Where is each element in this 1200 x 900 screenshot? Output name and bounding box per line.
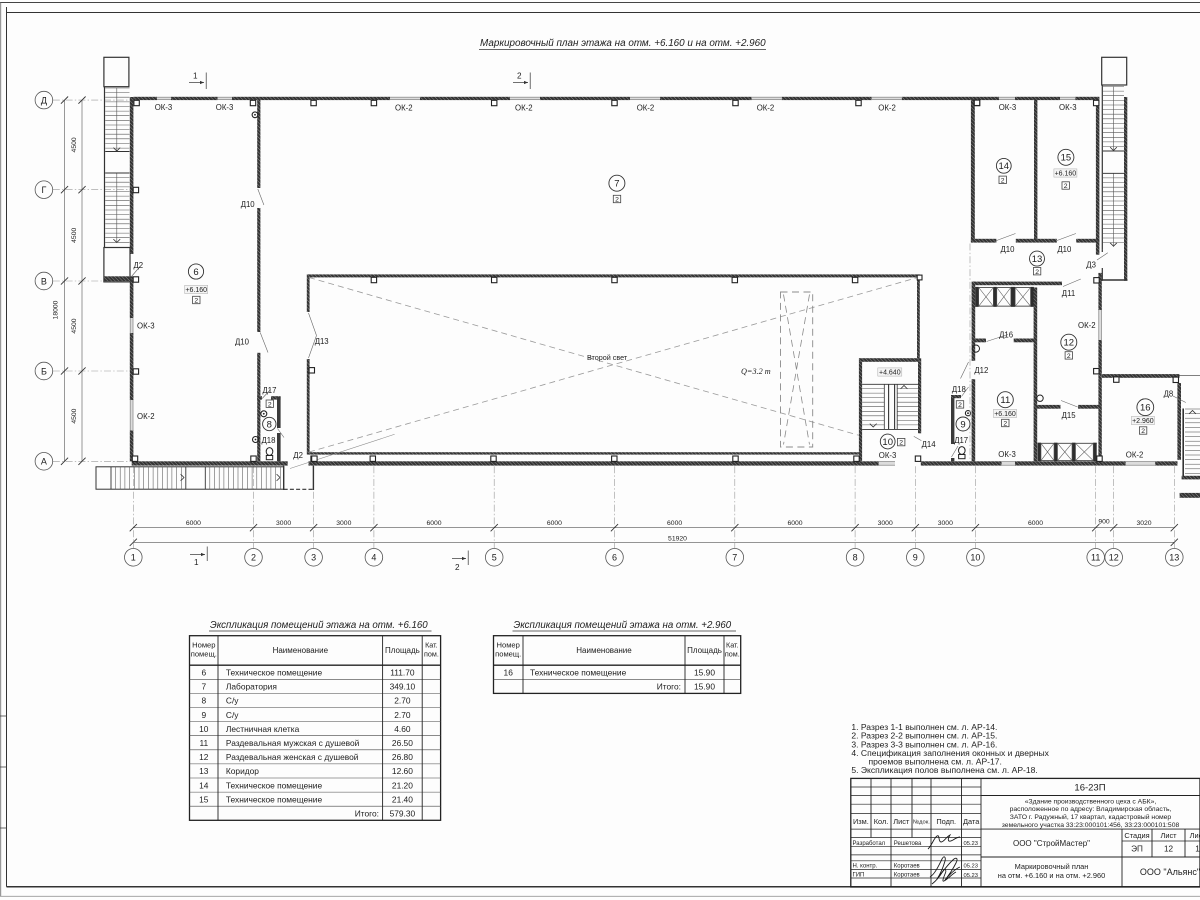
svg-text:7: 7 — [201, 682, 206, 692]
svg-text:ГИП: ГИП — [853, 873, 865, 879]
svg-text:Маркировочный план: Маркировочный план — [1015, 862, 1089, 871]
svg-text:4500: 4500 — [71, 408, 78, 423]
svg-text:6000: 6000 — [667, 520, 682, 527]
svg-text:помещ.: помещ. — [191, 650, 217, 659]
svg-text:6: 6 — [193, 267, 198, 278]
svg-text:Д17: Д17 — [954, 436, 968, 445]
svg-text:13: 13 — [199, 766, 209, 776]
svg-text:Изм.: Изм. — [853, 817, 869, 826]
svg-text:ОК-2: ОК-2 — [395, 104, 413, 113]
svg-text:В: В — [41, 276, 47, 286]
svg-text:Техническое помещение: Техническое помещение — [226, 780, 323, 790]
svg-text:16-23П: 16-23П — [1074, 783, 1105, 794]
svg-text:6: 6 — [201, 668, 206, 678]
svg-text:18000: 18000 — [53, 300, 60, 319]
svg-text:Маркировочный план этажа на от: Маркировочный план этажа на отм. +6.160 … — [480, 38, 766, 49]
svg-text:Кат.: Кат. — [425, 641, 438, 650]
svg-text:ОК-2: ОК-2 — [1078, 321, 1096, 330]
svg-text:ОК-2: ОК-2 — [1126, 451, 1144, 460]
svg-text:Итого:: Итого: — [657, 682, 681, 692]
svg-text:Второй свет: Второй свет — [587, 353, 628, 362]
svg-text:21.40: 21.40 — [392, 794, 413, 804]
svg-text:Лист: Лист — [893, 817, 910, 826]
svg-text:8: 8 — [201, 696, 206, 706]
svg-text:помещ.: помещ. — [495, 650, 521, 659]
svg-text:пом.: пом. — [725, 650, 740, 659]
svg-text:26.50: 26.50 — [392, 738, 413, 748]
svg-text:4: 4 — [371, 553, 376, 563]
svg-text:2: 2 — [1035, 269, 1039, 276]
svg-text:111.70: 111.70 — [390, 668, 415, 678]
svg-text:Q=3.2 т: Q=3.2 т — [741, 367, 771, 376]
svg-text:Техническое помещение: Техническое помещение — [226, 794, 323, 804]
svg-text:5: 5 — [492, 553, 497, 563]
svg-text:Коротаев: Коротаев — [894, 873, 920, 879]
svg-text:+4.640: +4.640 — [879, 370, 901, 377]
svg-text:3020: 3020 — [1136, 520, 1151, 527]
svg-text:12: 12 — [1164, 845, 1174, 854]
svg-text:ОК-2: ОК-2 — [878, 104, 896, 113]
svg-text:6000: 6000 — [1028, 520, 1043, 527]
svg-text:Д18: Д18 — [262, 436, 276, 445]
svg-text:14: 14 — [199, 780, 209, 790]
svg-text:6: 6 — [612, 553, 617, 563]
svg-text:ОК-2: ОК-2 — [637, 104, 655, 113]
svg-text:Д10: Д10 — [1001, 245, 1016, 254]
svg-text:Техническое помещение: Техническое помещение — [530, 668, 627, 678]
svg-text:+6.160: +6.160 — [994, 411, 1016, 418]
svg-text:26.80: 26.80 — [392, 752, 413, 762]
svg-text:ОК-2: ОК-2 — [137, 412, 155, 421]
svg-text:ООО "СтройМастер": ООО "СтройМастер" — [1013, 839, 1090, 848]
svg-text:С/у: С/у — [226, 710, 239, 720]
svg-text:ЭП: ЭП — [1131, 845, 1143, 854]
svg-text:Техническое помещение: Техническое помещение — [226, 668, 323, 678]
svg-text:ОК-2: ОК-2 — [515, 104, 533, 113]
svg-text:Д18: Д18 — [952, 385, 966, 394]
svg-text:Д14: Д14 — [922, 440, 937, 449]
svg-text:4.60: 4.60 — [394, 724, 411, 734]
svg-text:2: 2 — [1001, 177, 1005, 184]
svg-text:10: 10 — [970, 553, 980, 563]
svg-text:ОК-3: ОК-3 — [216, 103, 234, 112]
svg-text:3000: 3000 — [938, 520, 953, 527]
svg-text:6000: 6000 — [426, 520, 441, 527]
svg-text:Д10: Д10 — [241, 200, 256, 209]
svg-text:12: 12 — [1064, 338, 1075, 349]
svg-text:«Здание производственного цеха: «Здание производственного цеха с АБК», — [1025, 798, 1157, 805]
svg-text:№док.: №док. — [913, 820, 930, 826]
svg-text:3000: 3000 — [276, 520, 291, 527]
svg-text:Коротаев: Коротаев — [894, 863, 920, 869]
svg-text:Раздевальная женская с душевой: Раздевальная женская с душевой — [226, 752, 359, 762]
svg-text:Площадь: Площадь — [385, 646, 420, 655]
svg-text:9: 9 — [913, 553, 918, 563]
svg-text:2: 2 — [268, 401, 272, 408]
svg-text:ОК-3: ОК-3 — [998, 450, 1016, 459]
svg-text:1: 1 — [131, 553, 136, 563]
svg-text:А: А — [41, 457, 47, 467]
svg-text:12: 12 — [199, 752, 209, 762]
svg-text:Наименование: Наименование — [273, 646, 329, 655]
svg-text:Б: Б — [41, 366, 47, 376]
svg-text:2: 2 — [455, 563, 460, 572]
svg-text:579.30: 579.30 — [390, 809, 416, 819]
svg-text:21.20: 21.20 — [392, 780, 413, 790]
svg-text:2: 2 — [958, 402, 962, 409]
svg-text:900: 900 — [1098, 519, 1110, 526]
svg-text:3000: 3000 — [336, 520, 351, 527]
svg-text:Номер: Номер — [192, 641, 215, 650]
svg-text:11: 11 — [1091, 553, 1100, 563]
svg-text:Д3: Д3 — [1086, 261, 1096, 270]
svg-text:2: 2 — [1003, 421, 1007, 428]
svg-text:Д12: Д12 — [974, 366, 988, 375]
svg-text:2: 2 — [1141, 428, 1145, 435]
svg-text:Д10: Д10 — [1057, 245, 1072, 254]
svg-text:Решетова: Решетова — [894, 841, 922, 847]
svg-text:Д15: Д15 — [1062, 411, 1077, 420]
svg-text:3000: 3000 — [878, 520, 893, 527]
svg-text:4500: 4500 — [71, 228, 78, 243]
svg-text:+6.160: +6.160 — [1055, 171, 1077, 178]
svg-text:10: 10 — [199, 724, 209, 734]
svg-text:5. Экспликация полов выполнена: 5. Экспликация полов выполнена см. л. АР… — [851, 765, 1037, 775]
svg-text:15: 15 — [199, 794, 209, 804]
svg-text:Лис: Лис — [1190, 831, 1200, 840]
svg-text:13: 13 — [1032, 254, 1043, 265]
svg-text:Д8: Д8 — [1164, 390, 1174, 399]
svg-text:Стадия: Стадия — [1124, 831, 1149, 840]
svg-text:7: 7 — [732, 553, 737, 563]
svg-text:Номер: Номер — [497, 641, 520, 650]
svg-text:Раздевальная мужская с душевой: Раздевальная мужская с душевой — [226, 738, 360, 748]
svg-text:1: 1 — [1195, 845, 1200, 854]
svg-text:Наименование: Наименование — [576, 646, 632, 655]
svg-text:ОК-2: ОК-2 — [757, 104, 775, 113]
svg-text:2: 2 — [615, 197, 619, 204]
svg-text:Кат.: Кат. — [726, 641, 739, 650]
svg-text:05.23: 05.23 — [964, 873, 979, 879]
svg-text:Лист: Лист — [1160, 831, 1177, 840]
svg-text:Лаборатория: Лаборатория — [226, 682, 277, 692]
svg-text:2.70: 2.70 — [394, 696, 411, 706]
svg-text:Д: Д — [41, 95, 47, 105]
svg-text:Итого:: Итого: — [355, 809, 379, 819]
svg-text:Д16: Д16 — [999, 330, 1013, 339]
svg-text:6000: 6000 — [547, 520, 562, 527]
svg-text:ОК-3: ОК-3 — [137, 322, 155, 331]
svg-text:расположенное по адресу: Влади: расположенное по адресу: Владимирская об… — [1010, 805, 1172, 813]
svg-text:12: 12 — [1109, 553, 1119, 563]
svg-text:13: 13 — [1169, 553, 1179, 563]
svg-text:1: 1 — [194, 558, 199, 567]
svg-text:Разработал: Разработал — [853, 841, 886, 847]
svg-text:14: 14 — [999, 161, 1010, 172]
svg-text:ОК-3: ОК-3 — [879, 451, 897, 460]
svg-text:2: 2 — [517, 72, 522, 81]
svg-text:6000: 6000 — [787, 520, 802, 527]
svg-text:10: 10 — [882, 437, 893, 448]
svg-text:05.23: 05.23 — [964, 864, 979, 870]
svg-text:Н. контр.: Н. контр. — [853, 863, 878, 869]
svg-text:15.90: 15.90 — [694, 682, 715, 692]
svg-text:4500: 4500 — [71, 318, 78, 333]
svg-text:+2.960: +2.960 — [1132, 418, 1154, 425]
svg-text:Коридор: Коридор — [226, 766, 259, 776]
svg-text:7: 7 — [614, 179, 619, 190]
svg-text:Подп.: Подп. — [936, 817, 956, 826]
svg-text:ООО "Альянс": ООО "Альянс" — [1140, 867, 1200, 877]
svg-text:пом.: пом. — [424, 650, 439, 659]
svg-text:15: 15 — [1061, 153, 1072, 164]
svg-text:2: 2 — [1064, 183, 1068, 190]
svg-text:Кол.: Кол. — [874, 817, 889, 826]
svg-text:11: 11 — [199, 738, 208, 748]
svg-text:Д17: Д17 — [263, 386, 277, 395]
svg-text:1: 1 — [193, 72, 198, 81]
svg-text:Лестничная клетка: Лестничная клетка — [226, 724, 300, 734]
svg-text:ЗАТО г. Радужный, 17 квартал,: ЗАТО г. Радужный, 17 квартал, кадастровы… — [1010, 813, 1172, 821]
svg-text:Д2: Д2 — [293, 451, 303, 460]
svg-text:2.70: 2.70 — [394, 710, 411, 720]
svg-text:8: 8 — [853, 553, 858, 563]
svg-text:С/у: С/у — [226, 696, 239, 706]
svg-text:05.23: 05.23 — [964, 841, 979, 847]
svg-text:3: 3 — [311, 553, 316, 563]
svg-text:Площадь: Площадь — [687, 646, 722, 655]
svg-text:9: 9 — [201, 710, 206, 720]
svg-text:Экспликация помещений этажа на: Экспликация помещений этажа на отм. +2.9… — [514, 620, 732, 631]
svg-text:на отм. +6.160 и на отм. +2.96: на отм. +6.160 и на отм. +2.960 — [998, 871, 1105, 880]
svg-text:ОК-3: ОК-3 — [1059, 103, 1077, 112]
svg-text:12.60: 12.60 — [392, 766, 413, 776]
svg-text:ОК-3: ОК-3 — [999, 103, 1017, 112]
svg-text:Д10: Д10 — [235, 338, 250, 347]
svg-text:2: 2 — [194, 298, 198, 305]
svg-text:16: 16 — [504, 668, 514, 678]
svg-text:15.90: 15.90 — [694, 668, 715, 678]
svg-text:Д13: Д13 — [315, 337, 329, 346]
svg-text:2: 2 — [251, 553, 256, 563]
svg-text:Д11: Д11 — [1062, 289, 1075, 298]
svg-text:16: 16 — [1140, 403, 1151, 414]
svg-text:2: 2 — [1067, 353, 1071, 360]
svg-text:6000: 6000 — [186, 520, 201, 527]
svg-text:349.10: 349.10 — [390, 682, 416, 692]
svg-text:+6.160: +6.160 — [185, 287, 207, 294]
svg-text:4500: 4500 — [71, 137, 78, 152]
svg-text:9: 9 — [960, 419, 965, 430]
svg-text:земельного участка 33:23:00010: земельного участка 33:23:000101:456, 33:… — [1002, 822, 1180, 829]
svg-text:Г: Г — [41, 185, 46, 195]
svg-text:11: 11 — [1000, 395, 1010, 406]
svg-text:8: 8 — [267, 419, 272, 430]
svg-text:Дата: Дата — [963, 817, 980, 826]
svg-text:Экспликация помещений этажа на: Экспликация помещений этажа на отм. +6.1… — [210, 620, 428, 631]
svg-text:2: 2 — [899, 440, 903, 447]
svg-text:Д2: Д2 — [134, 261, 144, 270]
svg-text:51920: 51920 — [668, 535, 687, 542]
svg-text:ОК-3: ОК-3 — [155, 103, 173, 112]
